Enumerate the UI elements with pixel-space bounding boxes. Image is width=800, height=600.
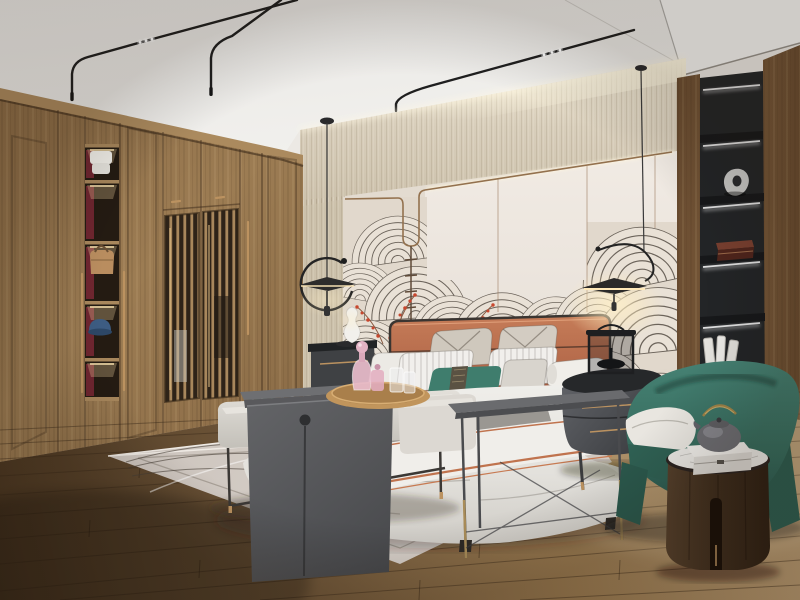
bedroom-scene	[0, 0, 800, 600]
vignette	[0, 0, 800, 600]
bedroom-photo	[0, 0, 800, 600]
